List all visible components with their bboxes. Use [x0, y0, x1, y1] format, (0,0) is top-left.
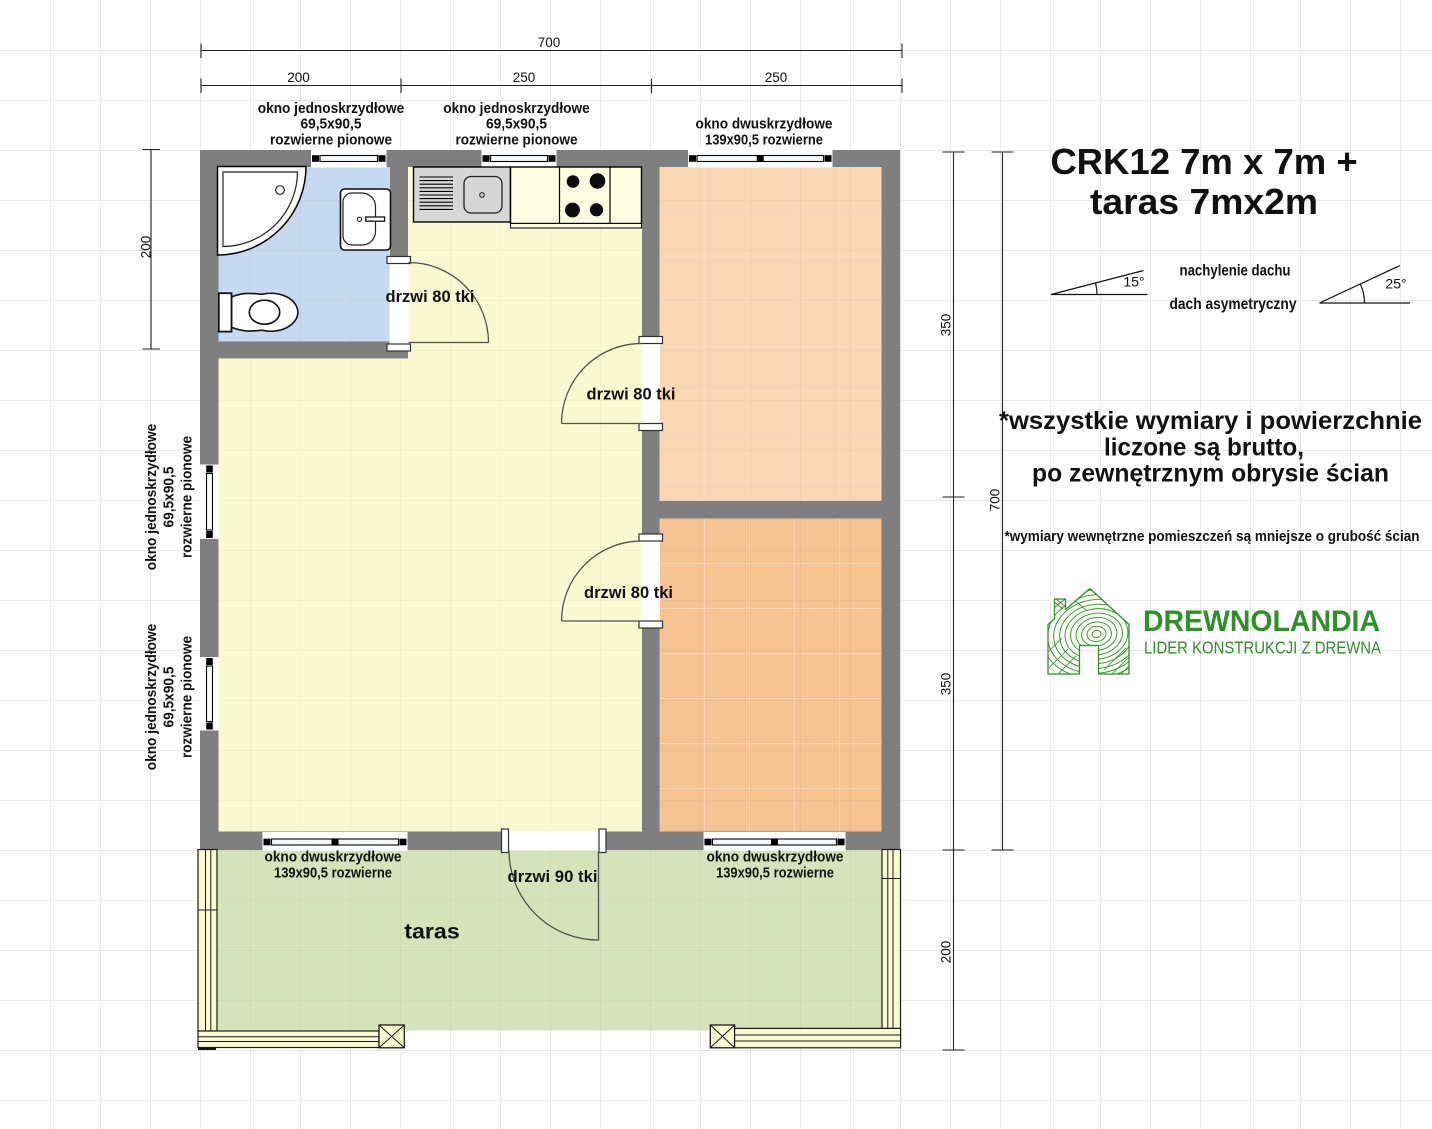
svg-text:drzwi 80 tki: drzwi 80 tki [386, 287, 475, 306]
svg-text:okno jednoskrzydłowe: okno jednoskrzydłowe [143, 624, 160, 771]
svg-text:rozwierne pionowe: rozwierne pionowe [178, 636, 195, 758]
svg-text:drzwi 80 tki: drzwi 80 tki [584, 583, 673, 602]
svg-text:dach asymetryczny: dach asymetryczny [1170, 296, 1297, 313]
svg-text:LIDER KONSTRUKCJI Z DREWNA: LIDER KONSTRUKCJI Z DREWNA [1144, 638, 1381, 658]
svg-text:po zewnętrznym obrysie ścian: po zewnętrznym obrysie ścian [1032, 460, 1389, 488]
svg-text:*wszystkie wymiary i powierzch: *wszystkie wymiary i powierzchnie [999, 407, 1422, 435]
svg-text:350: 350 [939, 314, 954, 337]
svg-text:okno jednoskrzydłowe: okno jednoskrzydłowe [443, 100, 590, 117]
svg-text:rozwierne pionowe: rozwierne pionowe [456, 131, 578, 148]
svg-text:okno dwuskrzydłowe: okno dwuskrzydłowe [265, 849, 402, 866]
svg-text:350: 350 [939, 673, 954, 696]
svg-text:drzwi 80 tki: drzwi 80 tki [587, 385, 676, 404]
svg-text:200: 200 [139, 236, 154, 259]
svg-text:rozwierne pionowe: rozwierne pionowe [270, 131, 392, 148]
svg-text:69,5x90,5: 69,5x90,5 [161, 667, 178, 728]
svg-text:okno dwuskrzydłowe: okno dwuskrzydłowe [707, 849, 844, 866]
svg-text:liczone są brutto,: liczone są brutto, [1104, 434, 1304, 462]
svg-text:CRK12 7m x 7m +: CRK12 7m x 7m + [1050, 141, 1357, 182]
svg-text:taras: taras [404, 920, 460, 944]
svg-text:700: 700 [988, 489, 1003, 512]
svg-text:200: 200 [287, 70, 310, 85]
svg-text:rozwierne pionowe: rozwierne pionowe [178, 436, 195, 558]
svg-text:okno jednoskrzydłowe: okno jednoskrzydłowe [143, 424, 160, 571]
svg-text:25°: 25° [1385, 276, 1406, 292]
svg-text:drzwi 90 tki: drzwi 90 tki [508, 867, 598, 886]
svg-text:15°: 15° [1123, 274, 1144, 290]
svg-text:okno dwuskrzydłowe: okno dwuskrzydłowe [696, 116, 833, 133]
svg-text:69,5x90,5: 69,5x90,5 [301, 116, 362, 133]
svg-text:DREWNOLANDIA: DREWNOLANDIA [1143, 605, 1380, 638]
svg-text:139x90,5 rozwierne: 139x90,5 rozwierne [716, 865, 834, 882]
svg-text:200: 200 [939, 941, 954, 964]
svg-text:nachylenie dachu: nachylenie dachu [1180, 263, 1291, 280]
svg-text:139x90,5 rozwierne: 139x90,5 rozwierne [274, 865, 392, 882]
svg-text:*wymiary wewnętrzne pomieszcze: *wymiary wewnętrzne pomieszczeń są mniej… [1005, 529, 1420, 545]
svg-text:69,5x90,5: 69,5x90,5 [161, 467, 178, 528]
svg-text:139x90,5 rozwierne: 139x90,5 rozwierne [705, 131, 823, 148]
svg-text:69,5x90,5: 69,5x90,5 [486, 116, 547, 133]
svg-text:okno jednoskrzydłowe: okno jednoskrzydłowe [258, 100, 405, 117]
svg-text:700: 700 [538, 35, 561, 50]
svg-text:taras 7mx2m: taras 7mx2m [1090, 181, 1318, 222]
svg-text:250: 250 [765, 70, 788, 85]
svg-text:250: 250 [513, 70, 536, 85]
